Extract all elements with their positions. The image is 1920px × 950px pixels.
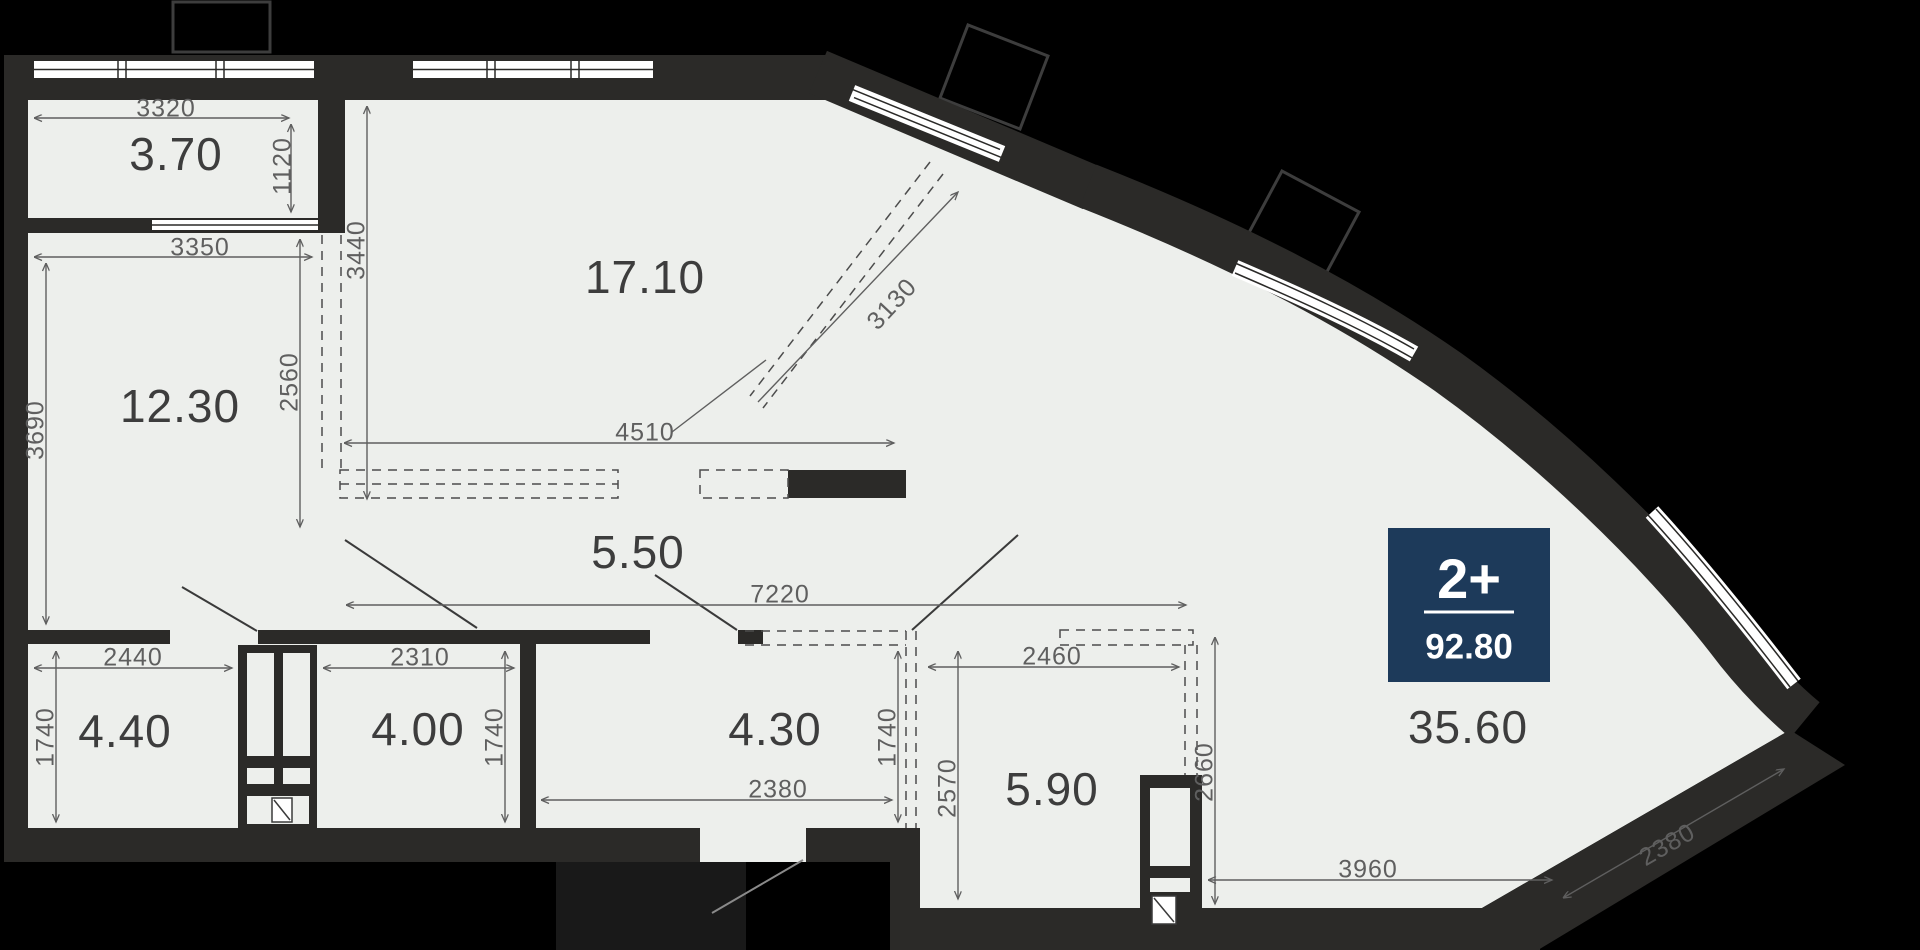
room-label-main: 35.60 xyxy=(1408,701,1528,753)
dim-bedroom-height: 3690 xyxy=(22,400,50,460)
dim-closet-span: 4510 xyxy=(615,419,675,447)
dim-balcony-depth: 1120 xyxy=(269,137,297,195)
room-label-bath2: 4.00 xyxy=(371,703,465,755)
room-label-bath1: 4.40 xyxy=(78,705,172,757)
dim-bedroom-split: 2560 xyxy=(276,352,304,412)
dim-corridor-span: 7220 xyxy=(750,581,810,609)
dim-kitchen-depth: 2570 xyxy=(934,758,962,818)
unit-badge-type: 2+ xyxy=(1437,547,1501,610)
dim-hall-width: 2380 xyxy=(748,776,808,804)
stair-core xyxy=(556,862,746,950)
dim-balcony-width: 3320 xyxy=(136,95,196,123)
dim-bath1-depth: 1740 xyxy=(32,707,60,767)
dim-main-width: 3960 xyxy=(1338,856,1398,884)
floor-plan-svg: 3320 1120 3350 3690 2560 3440 4510 3130 … xyxy=(0,0,1920,950)
room-label-living: 17.10 xyxy=(585,251,705,303)
dim-bath2-width: 2310 xyxy=(390,644,450,672)
dim-bath1-width: 2440 xyxy=(103,644,163,672)
dim-bedroom-width: 3350 xyxy=(170,234,230,262)
floor-plan-canvas: 3320 1120 3350 3690 2560 3440 4510 3130 … xyxy=(0,0,1920,950)
unit-badge: 2+ 92.80 xyxy=(1388,528,1550,682)
dim-bath2-depth: 1740 xyxy=(481,707,509,767)
entrance-opening xyxy=(700,828,806,862)
room-label-bedroom: 12.30 xyxy=(120,380,240,432)
unit-badge-area: 92.80 xyxy=(1425,627,1513,666)
room-label-balcony: 3.70 xyxy=(129,128,223,180)
room-label-corridor: 5.50 xyxy=(591,526,685,578)
dim-hall-depth: 1740 xyxy=(874,707,902,767)
dim-living-height: 3440 xyxy=(343,220,371,280)
dim-kitchen-width: 2460 xyxy=(1022,643,1082,671)
dim-kitchen-right: 2660 xyxy=(1191,742,1219,802)
room-label-kitchen: 5.90 xyxy=(1005,763,1099,815)
room-label-hall: 4.30 xyxy=(728,703,822,755)
